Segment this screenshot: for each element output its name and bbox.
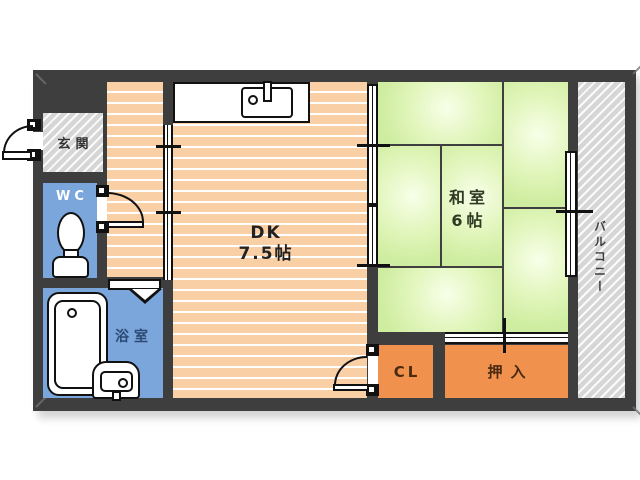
- washitsu-size: 6帖: [451, 209, 486, 232]
- room-oshiire: 押入: [445, 345, 568, 398]
- room-cl: CL: [378, 345, 433, 398]
- bathtub-drain-icon: [67, 308, 77, 318]
- dk-label: DK 7.5帖: [206, 221, 326, 267]
- room-corridor: [107, 82, 163, 277]
- wc-door-leaf: [107, 221, 144, 228]
- cl-door-hinge: [366, 344, 379, 356]
- cl-label: CL: [394, 363, 421, 381]
- kitchen-faucet-icon: [263, 81, 272, 102]
- dk-name: DK: [250, 223, 281, 244]
- washbasin-inner: [100, 371, 133, 392]
- bath-door-triangle-inner: [132, 289, 158, 300]
- genkan-label: 玄関: [57, 133, 93, 152]
- dk-washitsu-sliding-door: [367, 84, 378, 267]
- tatami-mat-5: [378, 267, 503, 332]
- room-genkan: 玄関: [43, 113, 103, 172]
- oshiire-fusuma: [445, 332, 568, 344]
- bath-label: 浴室: [115, 326, 153, 346]
- wc-label-wrap: WC: [43, 188, 97, 204]
- door-tick: [357, 264, 390, 267]
- washitsu-name: 和室: [449, 186, 489, 209]
- wc-label: WC: [56, 189, 88, 204]
- washbasin-stem: [112, 391, 121, 401]
- bath-label-wrap: 浴室: [100, 327, 163, 345]
- balcony-label-wrap: バルコニー: [585, 182, 615, 332]
- entrance-door-swing-arc: [3, 125, 33, 153]
- hallway-sliding-door: [163, 125, 173, 280]
- oshiire-label: 押入: [487, 361, 533, 382]
- cl-door-opening: [368, 352, 378, 386]
- fusuma-divider-tick: [503, 318, 506, 353]
- toilet-base: [52, 256, 89, 278]
- floorplan-page: { "floorplan": { "type": "japanese-apart…: [0, 0, 640, 480]
- wall-bevel-bottom-right: [632, 406, 640, 417]
- door-tick: [357, 144, 390, 147]
- door-tick: [156, 211, 181, 214]
- cl-door-leaf: [333, 384, 369, 391]
- entrance-opening: [33, 132, 43, 150]
- balcony-label: バルコニー: [592, 220, 609, 295]
- tatami-mat-1: [378, 82, 503, 145]
- balcony-sliding-window: [565, 151, 577, 277]
- kitchen-drain-icon: [248, 95, 258, 105]
- toilet-bowl: [57, 212, 85, 254]
- dk-size: 7.5帖: [238, 244, 293, 265]
- washbasin-drain-icon: [118, 378, 128, 388]
- door-tick: [156, 145, 181, 148]
- washitsu-label: 和室 6帖: [407, 185, 527, 233]
